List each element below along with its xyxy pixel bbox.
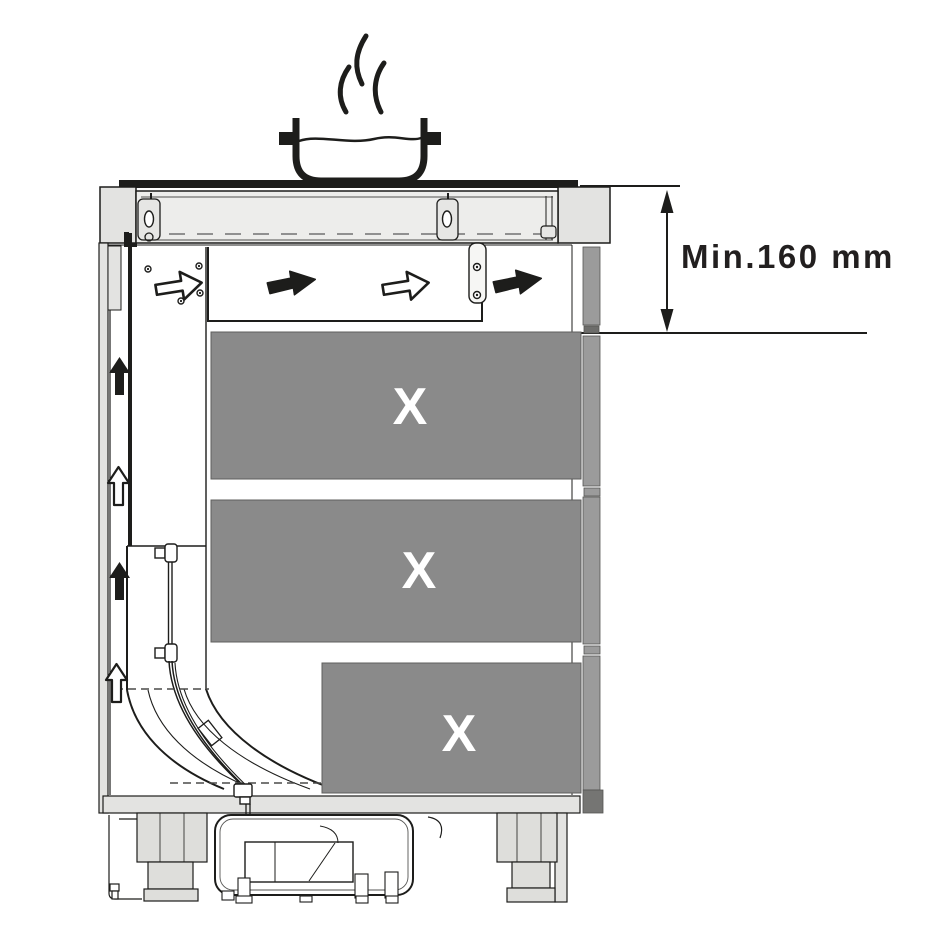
blower-vent	[245, 842, 353, 882]
drawer-1-label: X	[393, 378, 428, 436]
mounting-bracket-left	[138, 193, 160, 241]
airflow-right-solid-icon-1	[266, 267, 317, 298]
airflow-up-outline-icon-1	[108, 467, 129, 505]
plinth-area	[109, 813, 557, 903]
hob-unit	[124, 191, 558, 247]
drawer-front-strips	[583, 247, 603, 813]
drawer-3-label: X	[442, 705, 477, 763]
air-channel	[145, 243, 543, 321]
cabinet-foot-right	[497, 813, 557, 902]
cabinet-bottom-shelf	[103, 796, 580, 813]
drawer-2: X	[211, 500, 581, 642]
airflow-right-outline-icon-2	[381, 269, 431, 304]
steam-icon	[340, 36, 384, 112]
pot-icon	[279, 118, 441, 181]
airflow-up-solid-icon-1	[109, 357, 130, 395]
mounting-bracket-center	[437, 193, 458, 240]
installation-diagram: Min.160 mm	[0, 0, 940, 940]
cooktop-glass	[119, 180, 578, 188]
cable-clamp-icon-2	[155, 644, 177, 662]
diagram-canvas: Min.160 mm	[0, 0, 940, 940]
arrow-up-head	[661, 190, 674, 213]
cabinet-foot-left	[137, 813, 207, 901]
airflow-up-outline-icon-2	[106, 664, 127, 702]
drawer-2-label: X	[402, 542, 437, 600]
dimension-label: Min.160 mm	[681, 238, 895, 275]
blower-hook	[428, 817, 442, 838]
plinth-blower-unit	[215, 815, 442, 903]
airflow-right-solid-icon-2	[492, 266, 543, 297]
drawer-3: X	[322, 663, 581, 793]
dimension-min-160: Min.160 mm	[577, 186, 895, 333]
drawer-1: X	[211, 332, 581, 479]
arrow-down-head	[661, 309, 674, 332]
